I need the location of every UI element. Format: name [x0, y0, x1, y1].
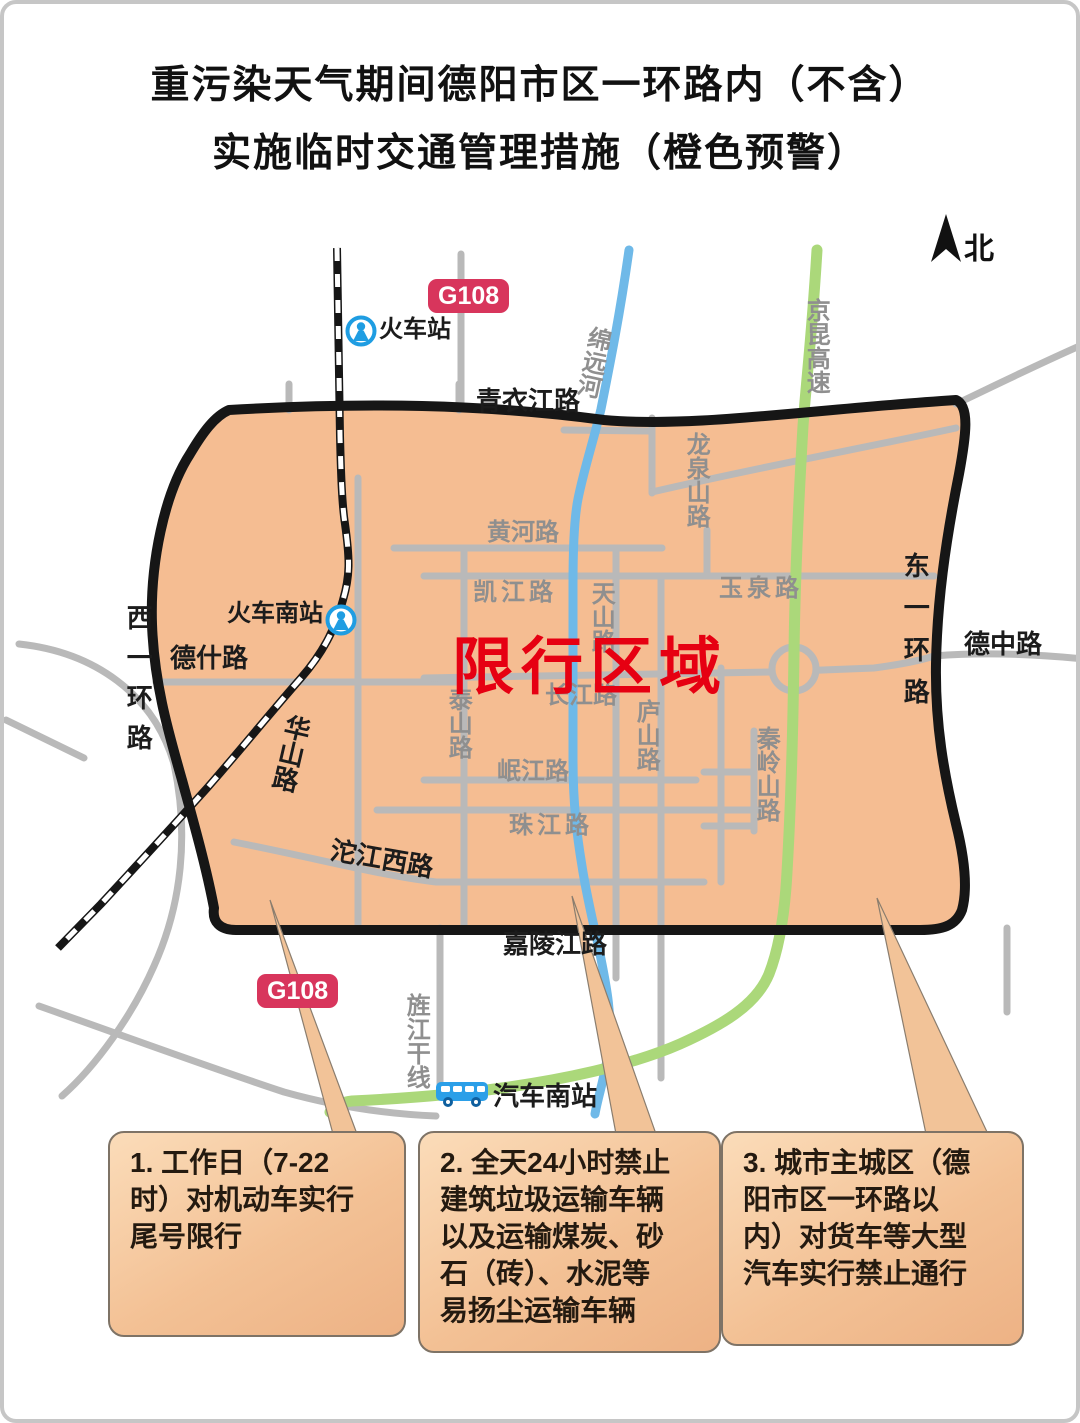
road-label-qingyijiang: 青衣江路 — [476, 388, 580, 415]
north-arrow-icon — [931, 214, 961, 262]
road-label-xiyihuan: 西一环路 — [124, 604, 151, 764]
road-label-lushan: 庐山路 — [633, 699, 658, 771]
road-label-minjiang: 岷江路 — [497, 759, 569, 784]
callout-box-2: 2. 全天24小时禁止 建筑垃圾运输车辆 以及运输煤炭、砂 石（砖）、水泥等 易… — [418, 1131, 721, 1353]
g108-badge-bottom: G108 — [257, 974, 338, 1008]
callout-box-1: 1. 工作日（7-22 时）对机动车实行 尾号限行 — [108, 1131, 406, 1337]
highway-label-jingkun: 京昆高速 — [803, 298, 828, 394]
road-label-longquanshan: 龙泉山路 — [683, 432, 708, 528]
road-label-kaijiang: 凯江路 — [473, 580, 557, 605]
g108-badge-top: G108 — [428, 279, 509, 313]
bus-station-icon — [436, 1082, 488, 1107]
road-label-dezhong: 德中路 — [964, 631, 1042, 658]
station-label-train: 火车站 — [379, 317, 451, 342]
poster-page: 重污染天气期间德阳市区一环路内（不含） 实施临时交通管理措施（橙色预警） — [0, 0, 1080, 1423]
callout-box-3: 3. 城市主城区（德 阳市区一环路以 内）对货车等大型 汽车实行禁止通行 — [721, 1131, 1024, 1346]
station-label-bus-south: 汽车南站 — [493, 1083, 597, 1110]
road-label-dongyihuan: 东一环路 — [901, 552, 928, 720]
road-label-jingjiangganxian: 旌江干线 — [403, 993, 428, 1089]
train-station-icon — [348, 318, 375, 345]
station-label-train-south: 火车南站 — [227, 601, 323, 626]
road-label-huanghe: 黄河路 — [487, 520, 559, 545]
road-label-qinlingshan: 秦岭山路 — [753, 726, 778, 822]
north-label: 北 — [964, 224, 994, 268]
road-label-yuquan: 玉泉路 — [719, 576, 803, 601]
road-label-jialingjiang: 嘉陵江路 — [503, 931, 607, 958]
restricted-zone-label: 限行区域 — [452, 616, 728, 706]
train-south-station-icon — [328, 607, 355, 634]
road-label-zhujiang: 珠江路 — [509, 813, 593, 838]
road-label-deshi: 德什路 — [170, 645, 248, 672]
